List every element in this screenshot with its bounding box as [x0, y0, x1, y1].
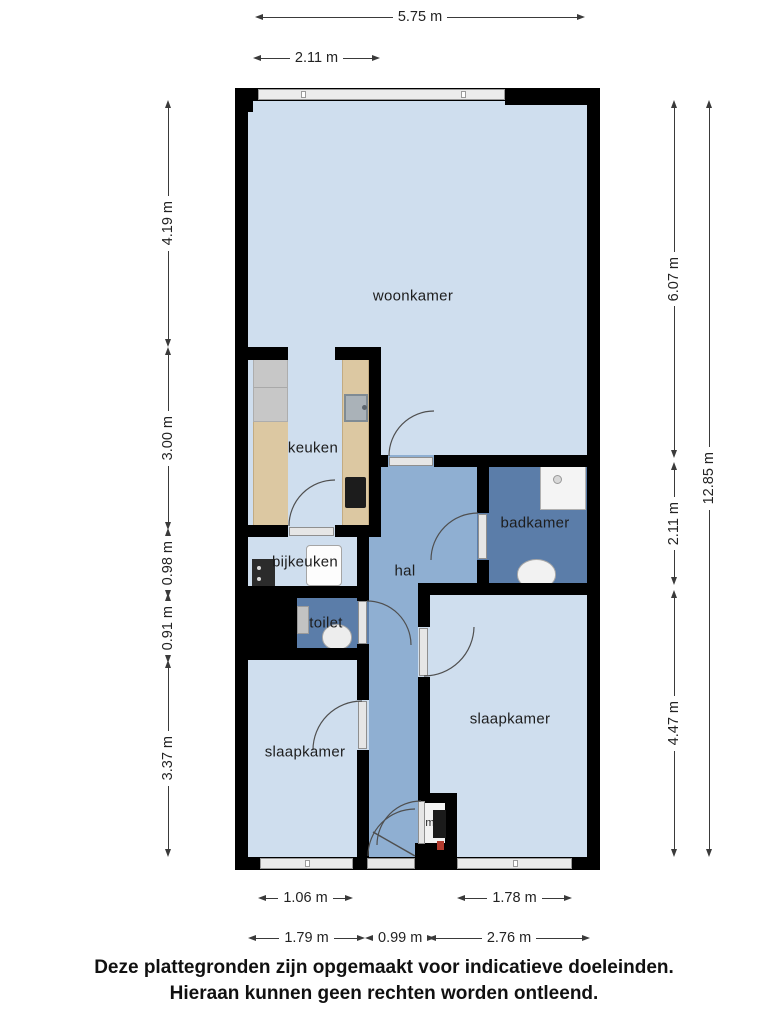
dimension-top-partial: 2.11 m: [253, 51, 380, 65]
dimension-bottom-2: 0.99 m: [365, 931, 428, 945]
room-label-badkamer: badkamer: [500, 515, 569, 532]
meter-panel: [433, 810, 446, 838]
room-label-slaapkamer-left: slaapkamer: [265, 744, 346, 761]
dimension-left-4: 0.91 m: [160, 593, 176, 657]
dimension-right-total: 12.85 m: [701, 100, 717, 857]
dimension-left-1: 4.19 m: [160, 100, 176, 347]
dimension-right-2: 2.11 m: [666, 462, 682, 585]
dimension-left-5: 3.37 m: [160, 660, 176, 857]
door-swing-arcs: [0, 0, 768, 1024]
dimension-bottom-window-right: 1.78 m: [457, 891, 572, 905]
swing-toilet: [367, 601, 411, 645]
dimension-left-3: 0.98 m: [160, 528, 176, 590]
swing-slaapkamer-right: [424, 627, 474, 676]
fire-extinguisher: [437, 841, 444, 850]
dimension-top-total: 5.75 m: [255, 10, 585, 24]
dimension-bottom-window-left: 1.06 m: [258, 891, 353, 905]
disclaimer-line-2: Hieraan kunnen geen rechten worden ontle…: [0, 983, 768, 1005]
swing-woonkamer-hal: [389, 411, 434, 456]
room-label-bijkeuken: bijkeuken: [272, 554, 338, 571]
dimension-right-3: 4.47 m: [666, 590, 682, 857]
dimension-bottom-3: 2.76 m: [428, 931, 590, 945]
dimension-bottom-1: 1.79 m: [248, 931, 365, 945]
room-label-toilet: toilet: [309, 615, 343, 632]
dimension-left-2: 3.00 m: [160, 347, 176, 530]
dimension-right-1: 6.07 m: [666, 100, 682, 458]
room-label-hal: hal: [395, 563, 416, 580]
swing-badkamer: [431, 513, 478, 560]
room-label-woonkamer: woonkamer: [373, 288, 453, 305]
room-label-slaapkamer-right: slaapkamer: [470, 711, 551, 728]
front-door-leaf: [373, 832, 415, 856]
swing-keuken: [289, 480, 335, 526]
room-label-keuken: keuken: [288, 440, 338, 457]
disclaimer-line-1: Deze plattegronden zijn opgemaakt voor i…: [0, 957, 768, 979]
floor-plan: woonkamer keuken bijkeuken hal badkamer …: [0, 0, 768, 1024]
